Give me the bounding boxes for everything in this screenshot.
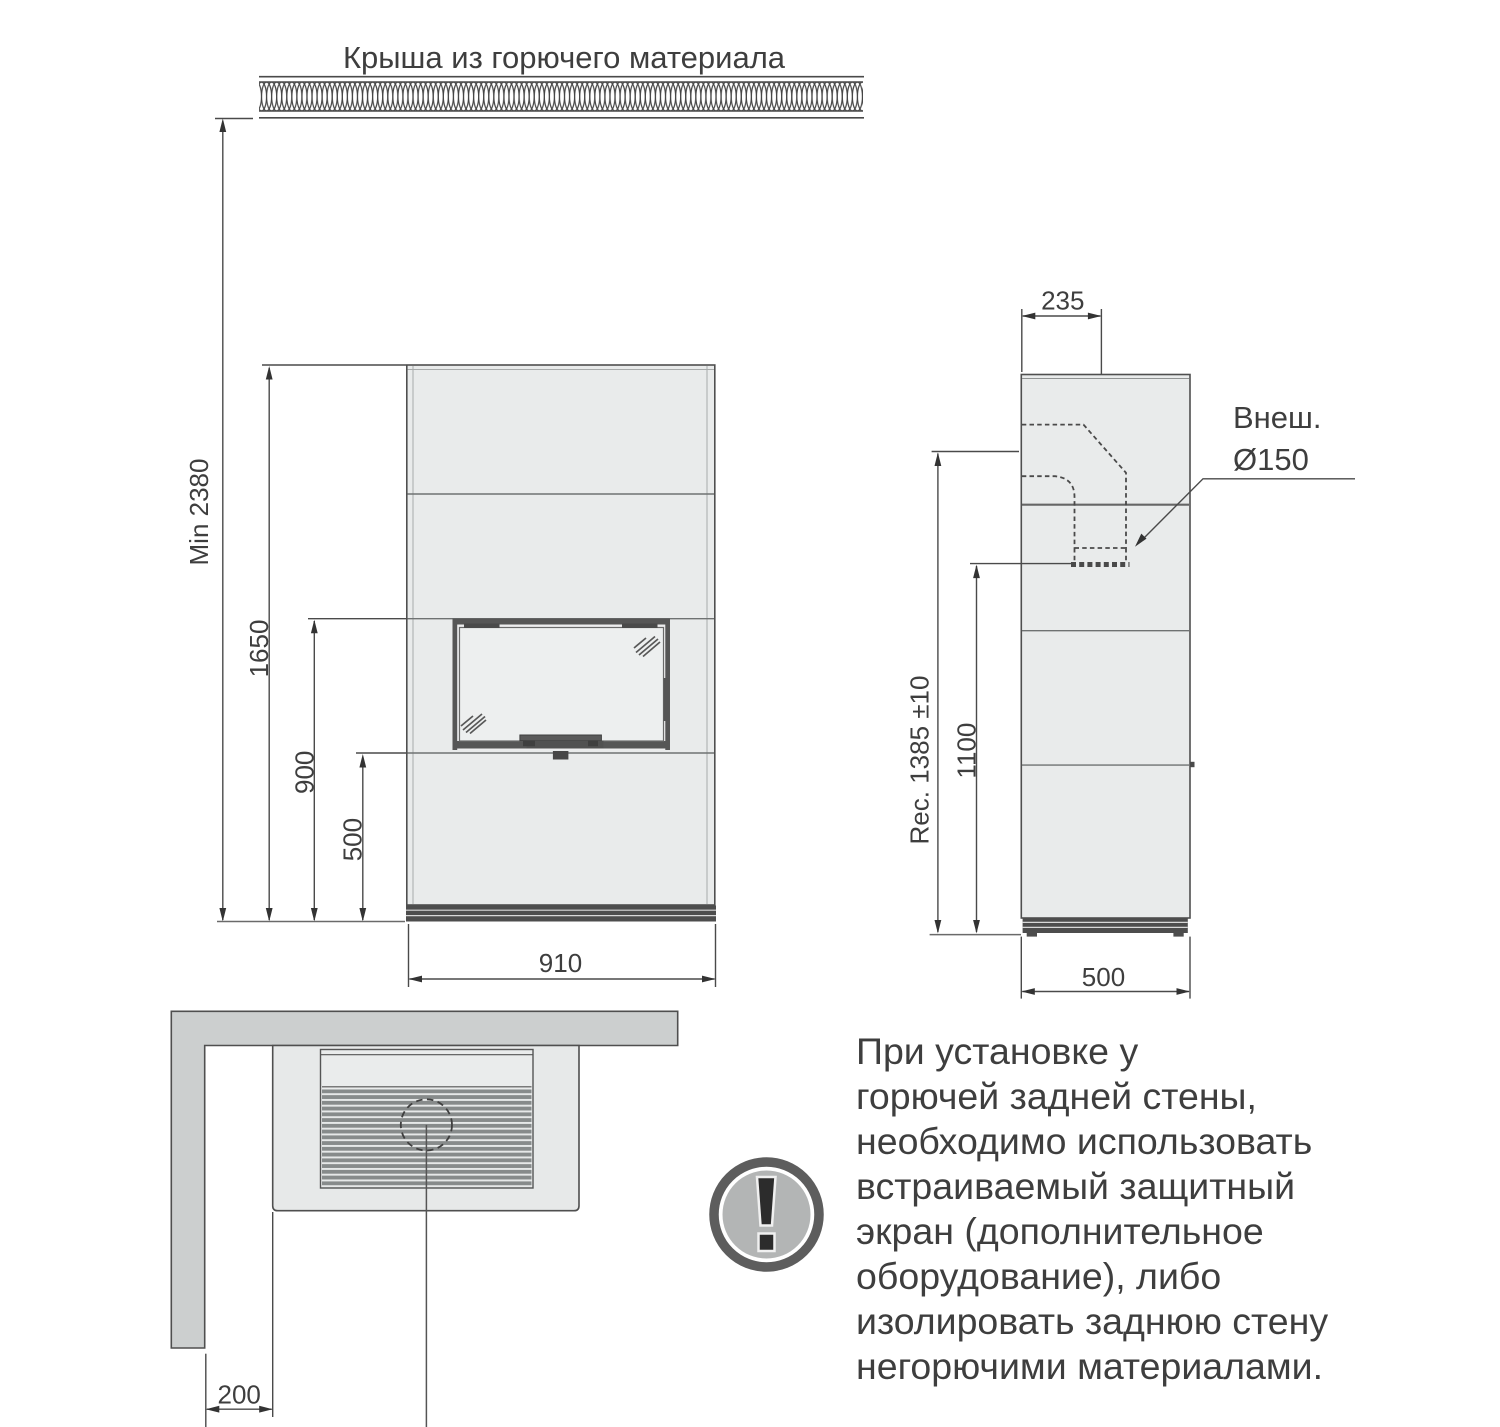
svg-text:встраиваемый защитный: встраиваемый защитный [856, 1165, 1295, 1207]
svg-text:экран (дополнительное: экран (дополнительное [856, 1210, 1264, 1252]
svg-text:негорючими материалами.: негорючими материалами. [856, 1345, 1323, 1387]
svg-text:Крыша из горючего материала: Крыша из горючего материала [343, 40, 786, 75]
svg-text:1650: 1650 [244, 620, 274, 678]
svg-text:Rec. 1385 ±10: Rec. 1385 ±10 [905, 676, 935, 845]
svg-text:500: 500 [338, 818, 368, 861]
svg-text:При установке у: При установке у [856, 1030, 1138, 1072]
svg-text:235: 235 [1041, 286, 1084, 316]
svg-text:910: 910 [539, 948, 582, 978]
svg-text:оборудование), либо: оборудование), либо [856, 1255, 1221, 1297]
svg-text:200: 200 [218, 1380, 261, 1410]
svg-text:Ø150: Ø150 [1233, 442, 1309, 477]
svg-text:Min 2380: Min 2380 [184, 459, 214, 566]
svg-text:Внеш.: Внеш. [1233, 400, 1322, 435]
svg-text:900: 900 [290, 751, 320, 794]
svg-text:необходимо использовать: необходимо использовать [856, 1120, 1312, 1162]
svg-text:500: 500 [1082, 962, 1125, 992]
svg-text:изолировать заднюю стену: изолировать заднюю стену [856, 1300, 1328, 1342]
svg-text:1100: 1100 [952, 723, 982, 779]
svg-text:горючей задней стены,: горючей задней стены, [856, 1075, 1257, 1117]
